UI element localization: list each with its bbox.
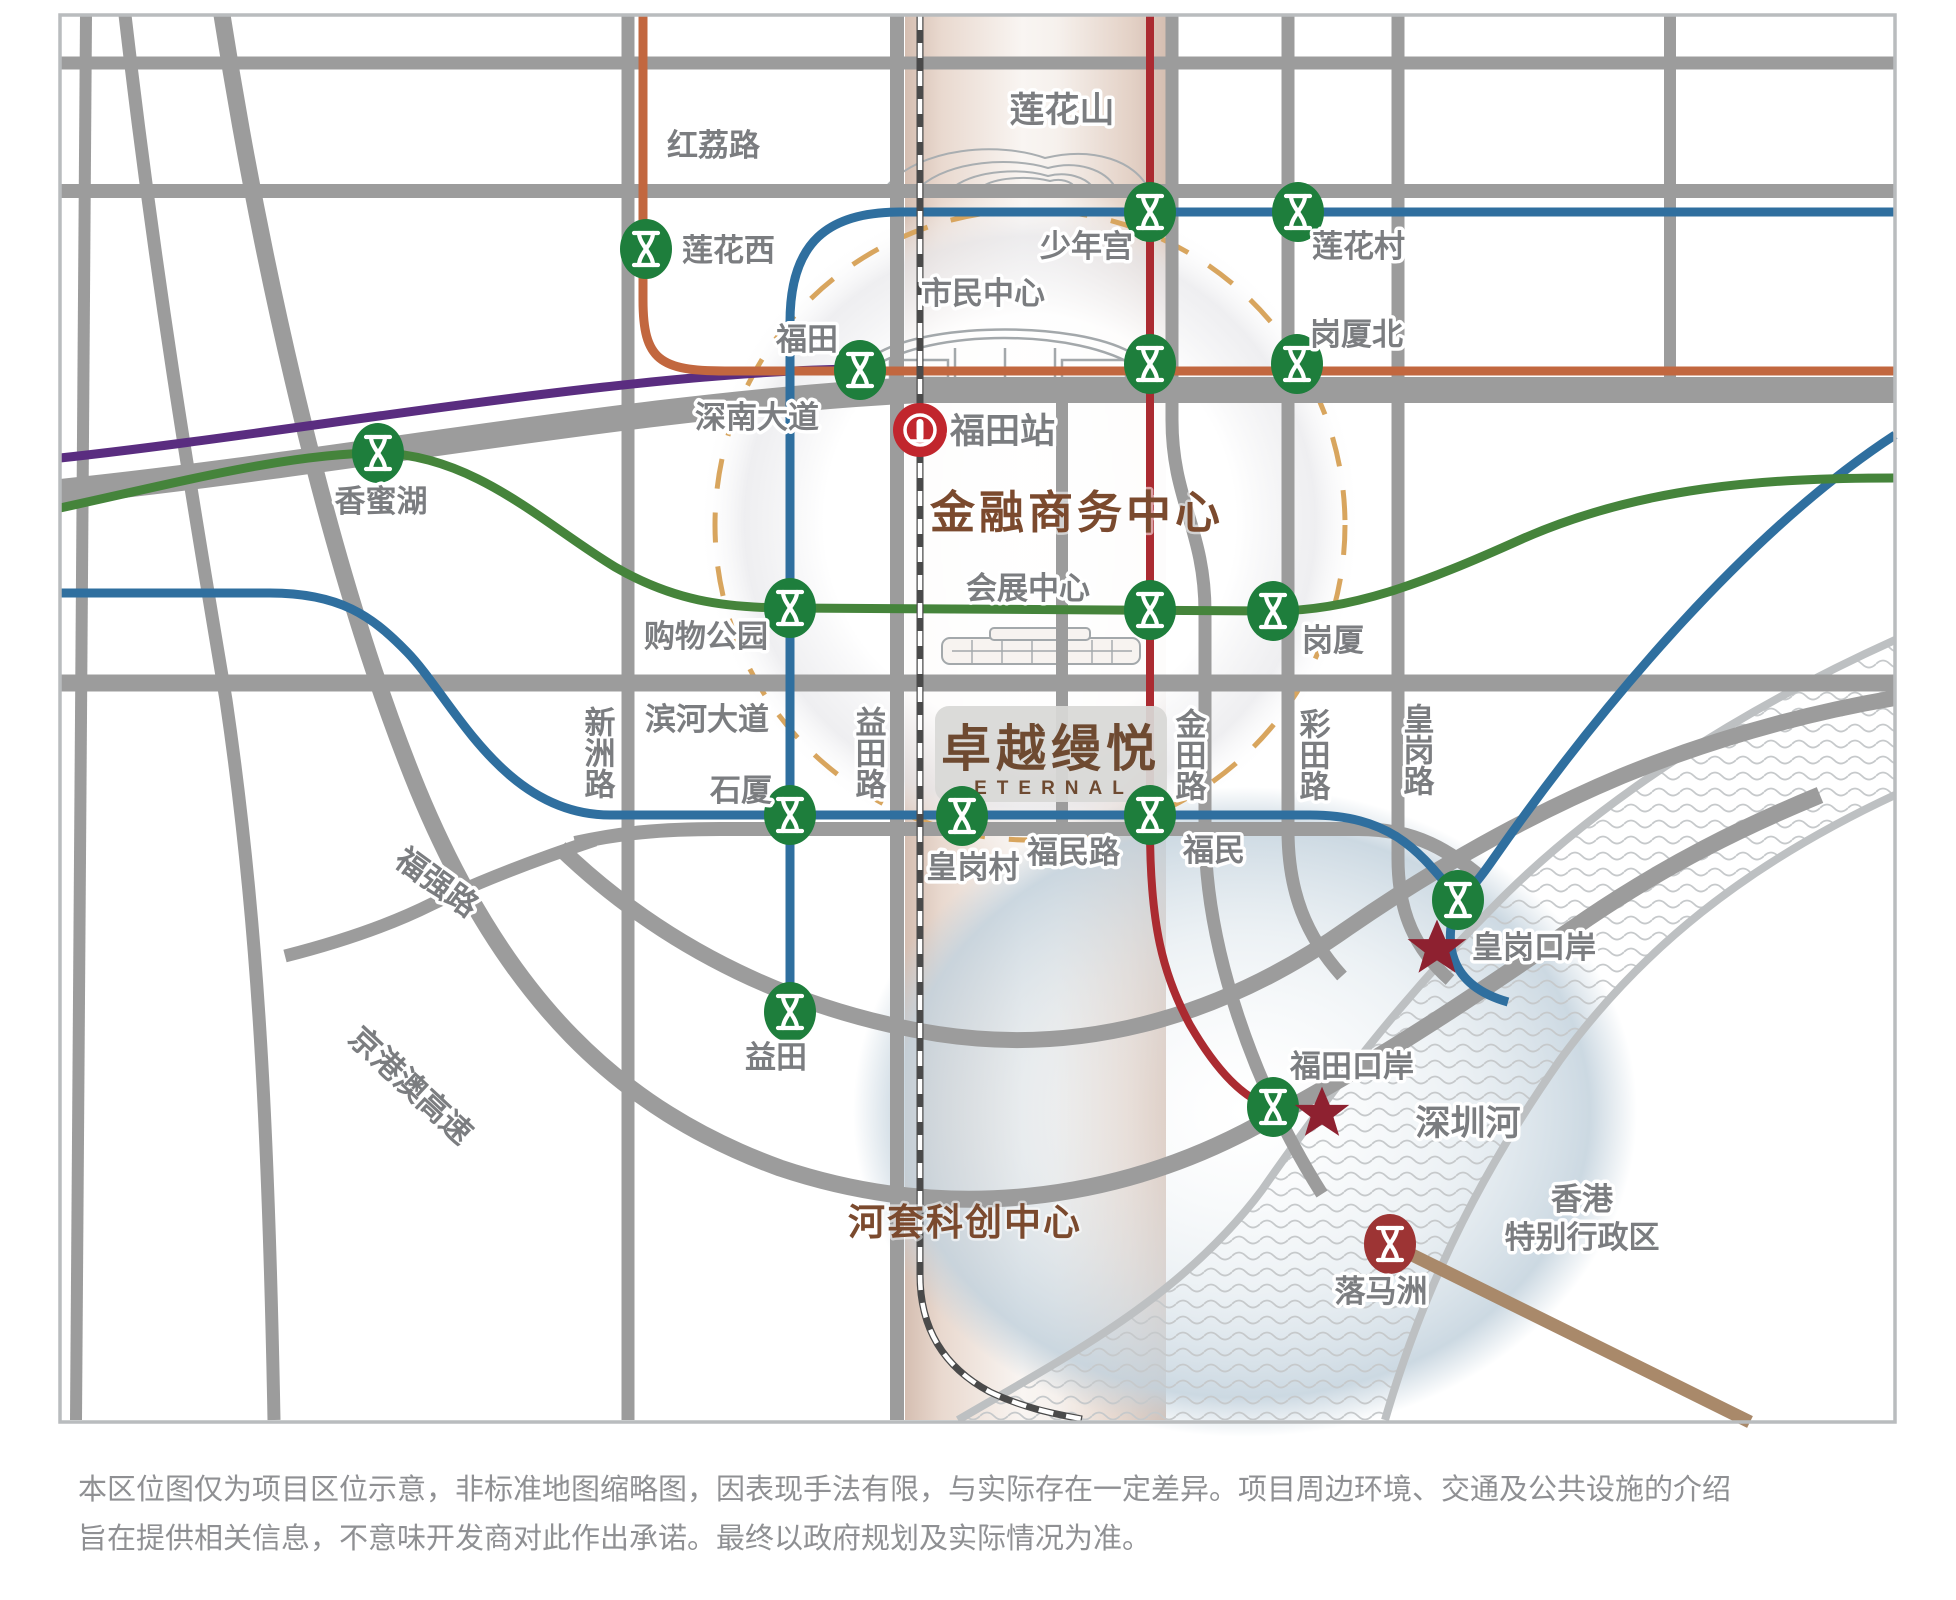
- label-station-convention: 会展中心: [966, 571, 1090, 606]
- label-hongkong-2: 特别行政区: [1505, 1220, 1660, 1255]
- label-road-hongli: 红荔路: [667, 128, 761, 163]
- label-station-yitian: 益田: [745, 1040, 807, 1075]
- location-map: 卓越缦悦 ETERNAL 莲花山 市民中: [0, 0, 1956, 1600]
- label-civic-center: 市民中心: [921, 276, 1045, 311]
- label-road-binhe: 滨河大道: [645, 702, 769, 737]
- label-station-huanggang-port: 皇岗口岸: [1472, 930, 1596, 965]
- location-map-page: 卓越缦悦 ETERNAL 莲花山 市民中: [0, 0, 1956, 1600]
- label-road-huanggang: 皇岗路: [1399, 703, 1435, 796]
- label-futian-rail-station: 福田站: [949, 412, 1055, 451]
- station-lok-ma-chau-icon: [1364, 1214, 1416, 1274]
- project-name-en: ETERNAL: [974, 778, 1134, 799]
- label-financial-center: 金融商务中心: [930, 487, 1224, 538]
- station-civic-center-icon: [1124, 334, 1176, 394]
- label-station-xiangmihu: 香蜜湖: [335, 484, 428, 519]
- label-hongkong-1: 香港: [1551, 1182, 1614, 1217]
- label-road-fumin: 福民路: [1026, 835, 1121, 870]
- label-station-fumin: 福民: [1182, 833, 1245, 868]
- label-station-gouwu-park: 购物公园: [644, 619, 768, 654]
- label-station-lianhuaxi: 莲花西: [682, 233, 775, 268]
- station-gouwu-park-icon: [764, 578, 816, 638]
- station-huanggang-village-icon: [936, 786, 988, 846]
- label-mountain: 莲花山: [1009, 91, 1114, 130]
- station-fumin-icon: [1124, 785, 1176, 845]
- station-huanggang-port-icon: [1432, 870, 1484, 930]
- label-station-shixia: 石厦: [709, 773, 772, 808]
- station-gangxia-icon: [1247, 581, 1299, 641]
- label-station-huanggang-village: 皇岗村: [927, 850, 1020, 885]
- label-hetao-center: 河套科创中心: [848, 1202, 1082, 1243]
- label-road-shennan: 深南大道: [695, 400, 819, 435]
- station-xiangmihu-icon: [352, 423, 404, 483]
- label-station-futian-port: 福田口岸: [1289, 1049, 1414, 1084]
- disclaimer-line-2: 旨在提供相关信息，不意味开发商对此作出承诺。最终以政府规划及实际情况为准。: [78, 1522, 1151, 1555]
- label-station-futian: 福田: [775, 322, 838, 357]
- disclaimer-line-1: 本区位图仅为项目区位示意，非标准地图缩略图，因表现手法有限，与实际存在一定差异。…: [78, 1473, 1731, 1506]
- station-yitian-icon: [764, 982, 816, 1042]
- station-convention-icon: [1124, 580, 1176, 640]
- label-road-yitian: 益田路: [851, 706, 887, 799]
- label-road-caitian: 彩田路: [1295, 708, 1331, 801]
- label-road-jintian: 金田路: [1171, 707, 1208, 801]
- label-station-lianhuacun: 莲花村: [1312, 229, 1405, 264]
- futian-rail-station-icon: [893, 403, 947, 457]
- label-station-gangxiabei: 岗厦北: [1310, 317, 1403, 352]
- label-road-xinzhou: 新洲路: [580, 706, 616, 799]
- label-station-lok-ma-chau: 落马洲: [1335, 1274, 1428, 1309]
- station-futian-icon: [834, 340, 886, 400]
- project-name-cn: 卓越缦悦: [941, 721, 1161, 777]
- label-station-gangxia: 岗厦: [1302, 623, 1364, 658]
- station-lianhuaxi-icon: [620, 219, 672, 279]
- station-futian-port-icon: [1247, 1077, 1299, 1137]
- label-station-shaoniangong: 少年宫: [1040, 229, 1133, 264]
- label-shenzhen-river: 深圳河: [1415, 1104, 1520, 1143]
